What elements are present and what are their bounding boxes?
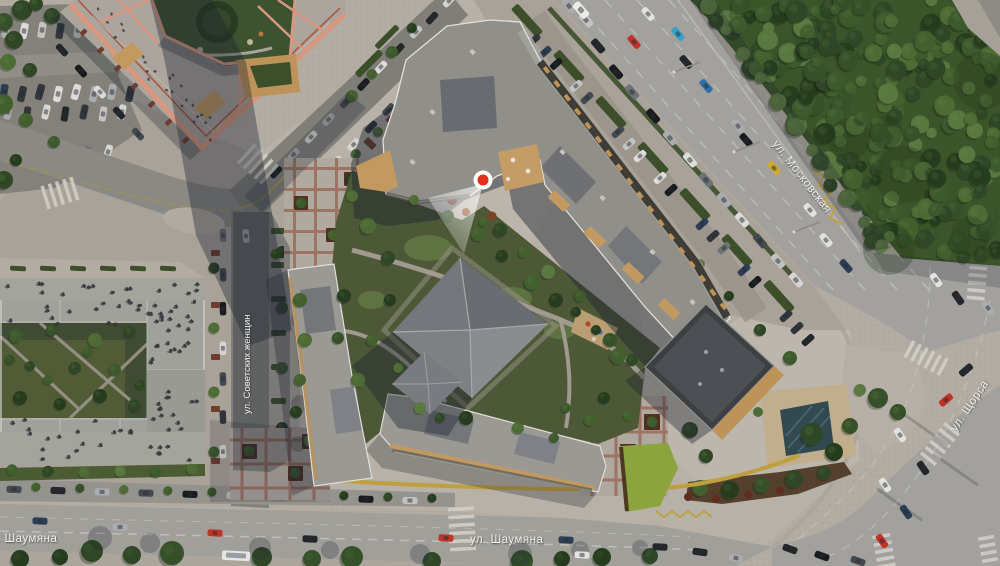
svg-text:ул. Советских женщин: ул. Советских женщин — [242, 315, 253, 415]
svg-text:ул. Шаумяна: ул. Шаумяна — [470, 534, 544, 546]
svg-text:ул. Шаумяна: ул. Шаумяна — [0, 533, 58, 545]
